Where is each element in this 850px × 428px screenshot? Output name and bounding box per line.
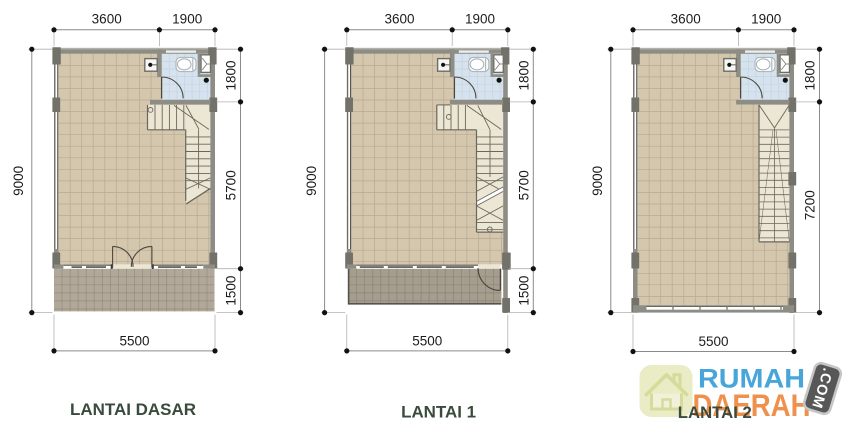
- svg-text:9000: 9000: [590, 166, 605, 196]
- svg-text:5500: 5500: [412, 333, 442, 348]
- svg-text:5700: 5700: [516, 170, 531, 200]
- svg-text:1900: 1900: [751, 12, 781, 27]
- svg-text:1800: 1800: [803, 60, 818, 90]
- svg-text:LANTAI DASAR: LANTAI DASAR: [70, 401, 196, 419]
- svg-text:5700: 5700: [224, 170, 239, 200]
- svg-text:1800: 1800: [516, 60, 531, 90]
- svg-text:7200: 7200: [803, 190, 818, 220]
- svg-text:3600: 3600: [384, 12, 414, 27]
- svg-text:3600: 3600: [92, 12, 122, 27]
- svg-text:3600: 3600: [671, 12, 701, 27]
- svg-text:1800: 1800: [224, 60, 239, 90]
- svg-text:9000: 9000: [304, 166, 319, 196]
- svg-text:9000: 9000: [11, 166, 26, 196]
- svg-text:5500: 5500: [698, 334, 728, 349]
- svg-text:1900: 1900: [172, 12, 202, 27]
- svg-text:1900: 1900: [465, 12, 495, 27]
- svg-text:1500: 1500: [516, 276, 531, 306]
- svg-text:LANTAI 1: LANTAI 1: [401, 404, 476, 422]
- svg-text:LANTAI 2: LANTAI 2: [678, 404, 752, 422]
- svg-text:1500: 1500: [224, 276, 239, 306]
- svg-text:5500: 5500: [119, 333, 149, 348]
